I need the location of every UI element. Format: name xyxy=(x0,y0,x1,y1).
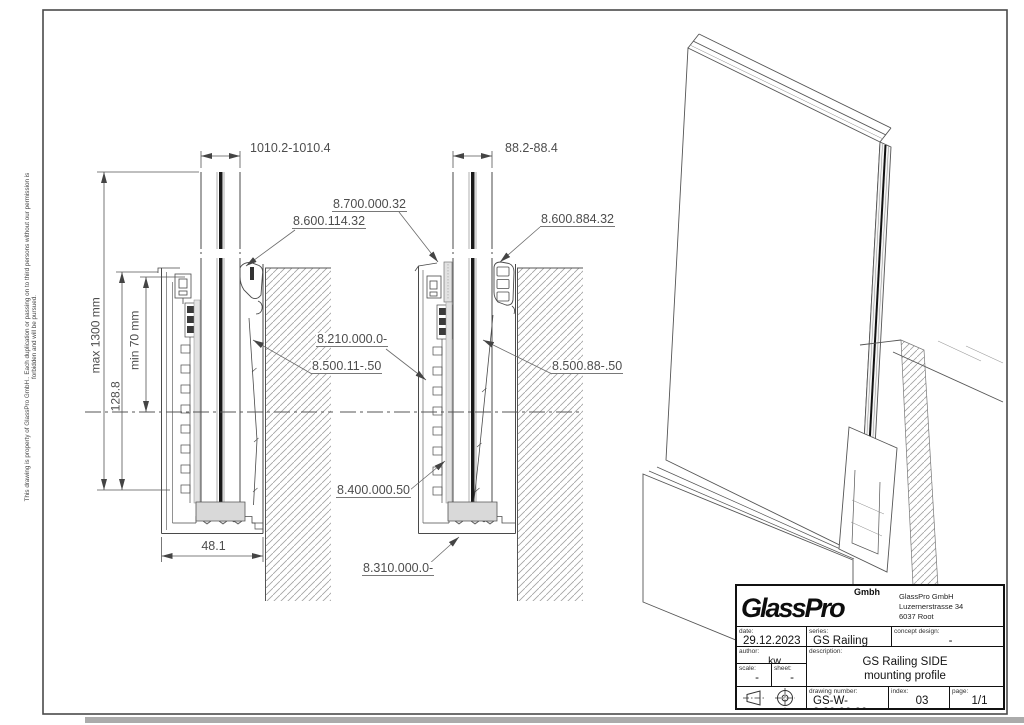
company-address: GlassPro GmbH Luzernerstrasse 34 6037 Ro… xyxy=(899,592,963,622)
page-value: 1/1 xyxy=(950,695,1003,707)
top-gasket xyxy=(494,262,515,314)
scale-cell: scale: - xyxy=(737,664,772,687)
description-line1: GS Railing SIDE xyxy=(807,656,1003,669)
title-block-header: GlassPro Gmbh GlassPro GmbH Luzernerstra… xyxy=(737,586,1003,627)
dim-profile-depth: 128.8 xyxy=(110,374,123,418)
drawing-sheet: { "page": { "disclaimer": "This drawing … xyxy=(0,0,1024,725)
page-cell: page: 1/1 xyxy=(950,687,1003,708)
setting-block xyxy=(448,502,497,524)
author-value: kw xyxy=(737,655,806,664)
company-address-line1: GlassPro GmbH xyxy=(899,592,963,602)
company-address-line3: 6037 Root xyxy=(899,612,963,622)
drawing-number-value: GS-W-8.20.00.00 xyxy=(807,695,888,708)
outer-pad xyxy=(444,262,452,302)
part-label-profile-body: 8.210.000.0- xyxy=(316,333,388,347)
company-logo: GlassPro xyxy=(741,593,844,624)
mounting-profile xyxy=(158,264,263,534)
dim-right-width: 88.2-88.4 xyxy=(504,142,559,155)
dim-base-width: 48.1 xyxy=(190,540,237,553)
glass-upper xyxy=(453,172,492,256)
setting-block xyxy=(196,502,245,524)
part-label-wedge-right: 8.500.88-.50 xyxy=(551,360,623,374)
clip-bracket xyxy=(175,274,191,304)
author-label: author: xyxy=(737,647,806,655)
part-label-top-seal-left: 8.600.114.32 xyxy=(292,215,366,229)
sheet-cell: sheet: - xyxy=(772,664,807,687)
sheet-label: sheet: xyxy=(772,664,806,672)
top-gasket xyxy=(240,262,263,314)
company-logo-suffix: Gmbh xyxy=(854,587,880,597)
dimensions xyxy=(453,151,492,168)
drawing-number-cell: drawing number: GS-W-8.20.00.00 xyxy=(807,687,889,708)
description-cell: description: GS Railing SIDE mounting pr… xyxy=(807,647,1003,687)
clip-bracket xyxy=(427,276,441,298)
first-angle-projection-icon xyxy=(743,688,807,708)
page-label: page: xyxy=(950,687,1003,695)
series-label: series: xyxy=(807,627,891,635)
index-label: index: xyxy=(889,687,949,695)
author-cell: author: kw xyxy=(737,647,807,664)
part-label-outer-pad: 8.700.000.32 xyxy=(332,198,407,212)
description-line2: mounting profile xyxy=(807,670,1003,683)
series-value: GS Railing xyxy=(807,635,891,647)
concept-cell: concept design: - xyxy=(892,627,1003,647)
title-block: GlassPro Gmbh GlassPro GmbH Luzernerstra… xyxy=(735,584,1005,710)
part-label-top-seal-right: 8.600.884.32 xyxy=(540,213,615,227)
glass-upper xyxy=(201,172,240,256)
glass-lower xyxy=(201,258,240,505)
part-label-wedge-left: 8.500.11-.50 xyxy=(311,360,382,374)
dim-glass-height: max 1300 mm xyxy=(90,290,103,380)
part-label-base-profile: 8.310.000.0- xyxy=(362,562,434,576)
projection-symbol-cell xyxy=(737,687,807,708)
company-address-line2: Luzernerstrasse 34 xyxy=(899,602,963,612)
index-cell: index: 03 xyxy=(889,687,950,708)
sheet-value: - xyxy=(772,672,806,684)
dim-left-width: 1010.2-1010.4 xyxy=(249,142,332,155)
drawing-number-label: drawing number: xyxy=(807,687,888,695)
date-value: 29.12.2023 xyxy=(737,635,806,647)
date-label: date: xyxy=(737,627,806,635)
concept-label: concept design: xyxy=(892,627,1003,635)
wedge xyxy=(249,318,259,505)
ownership-disclaimer: This drawing is property of GlassPro Gmb… xyxy=(24,167,38,507)
scale-value: - xyxy=(737,672,771,684)
index-value: 03 xyxy=(889,695,949,707)
dimensions xyxy=(97,151,263,562)
scale-label: scale: xyxy=(737,664,771,672)
serrated-clamp xyxy=(181,300,200,503)
part-label-setting-block: 8.400.000.50 xyxy=(336,484,411,498)
mounting-profile xyxy=(415,263,516,534)
dim-min-embed: min 70 mm xyxy=(129,300,142,380)
concept-value: - xyxy=(892,635,1003,647)
serrated-clamp xyxy=(433,302,452,503)
date-cell: date: 29.12.2023 xyxy=(737,627,807,647)
series-cell: series: GS Railing xyxy=(807,627,892,647)
description-label: description: xyxy=(807,647,1003,655)
